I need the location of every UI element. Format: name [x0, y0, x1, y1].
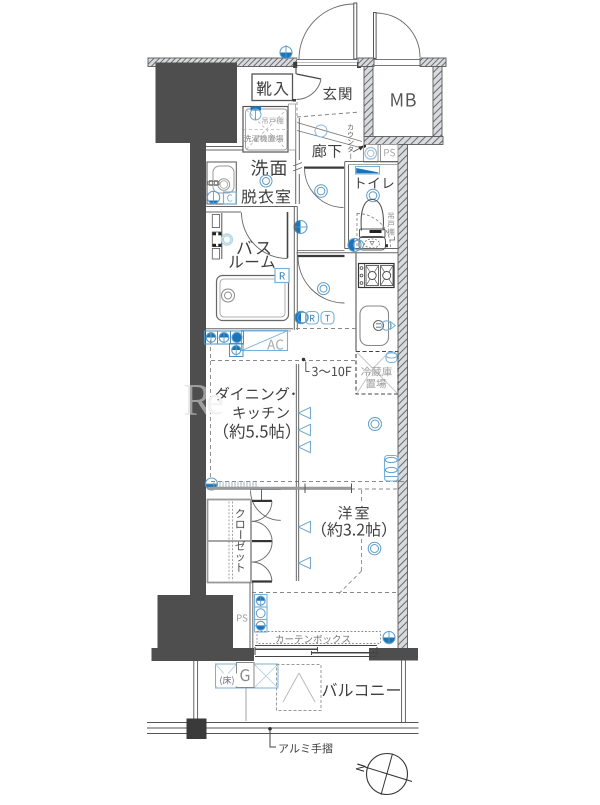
svg-text:e: e — [206, 378, 224, 423]
